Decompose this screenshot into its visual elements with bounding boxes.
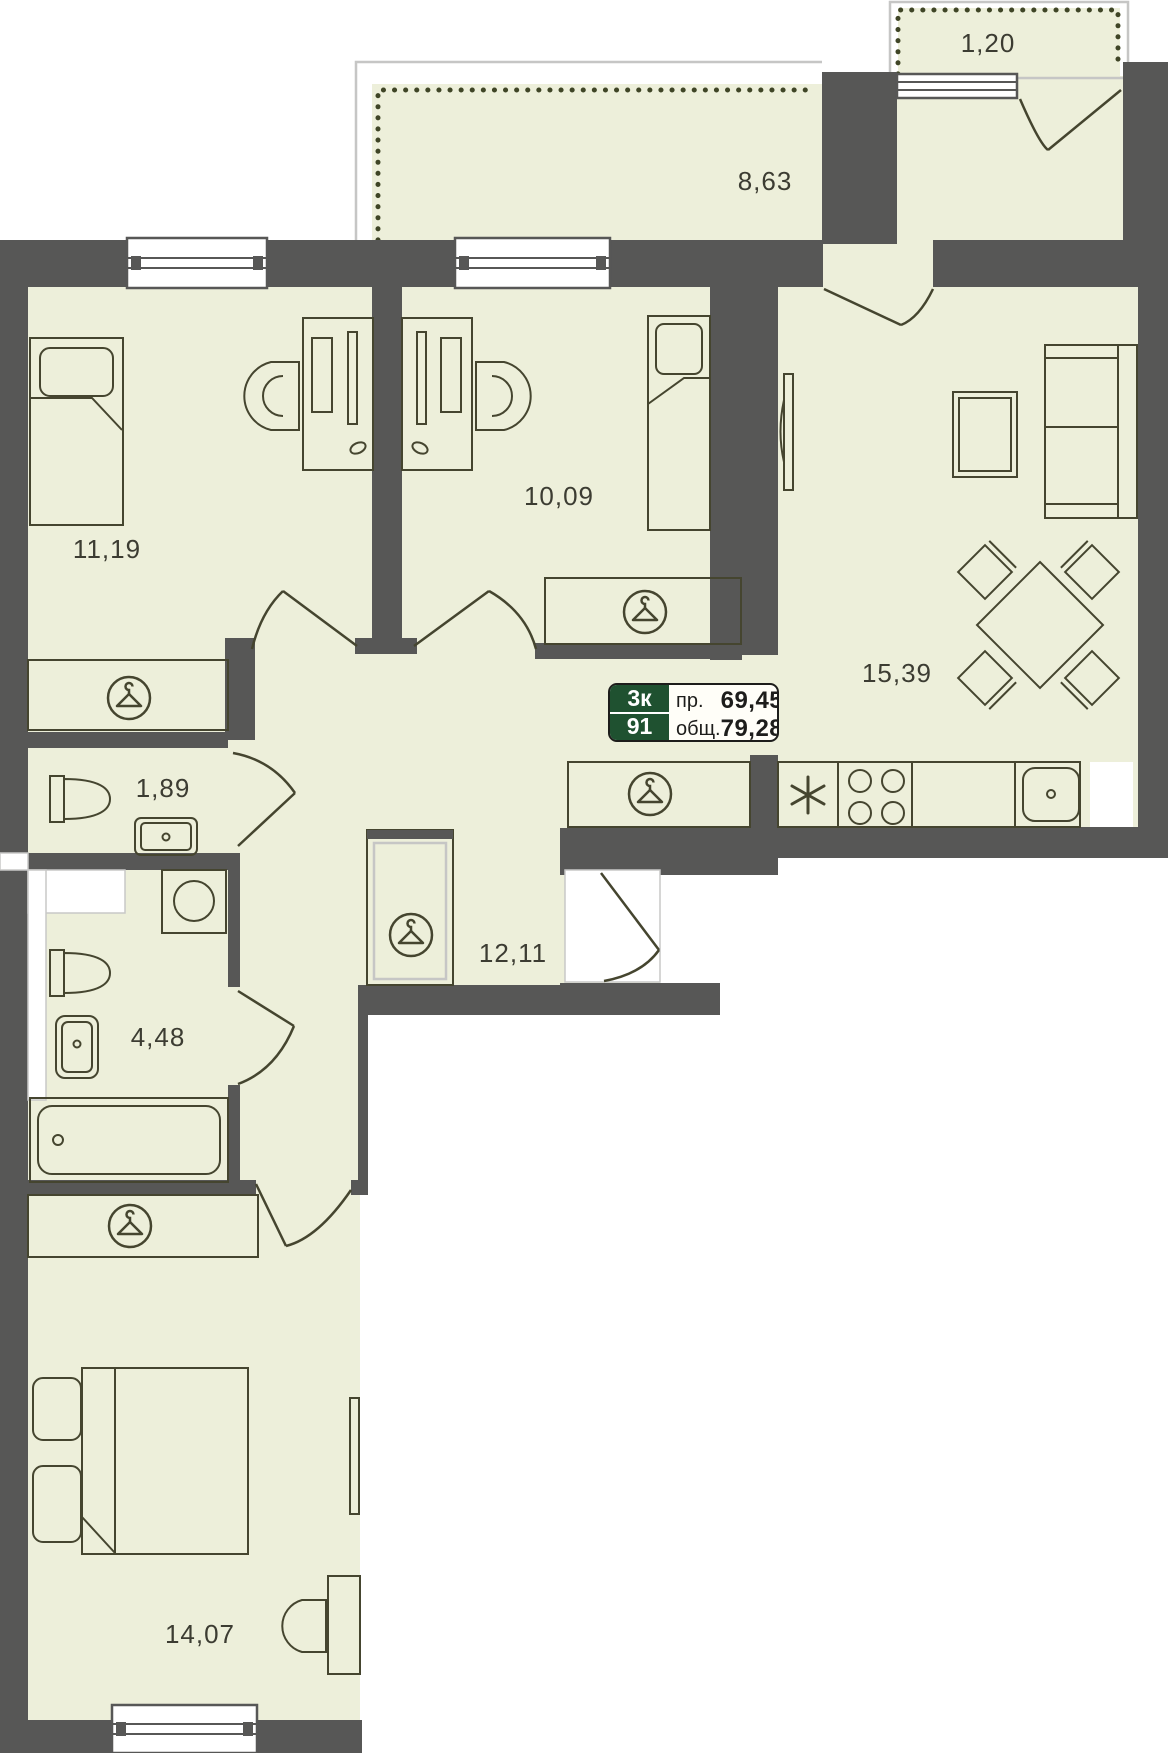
unit-badge-green: 3к 91	[610, 685, 669, 740]
living-area-row: пр. 69,45	[676, 687, 779, 715]
label-bedroom-1: 11,19	[73, 534, 141, 564]
shaft-notch-left	[0, 853, 28, 870]
window-bedroom2	[455, 238, 610, 288]
floor-plan-drawing: 1,20 8,63 11,19 10,09 15,39 1,89 4,48 12…	[0, 0, 1168, 1753]
fridge-niche	[1090, 762, 1133, 827]
window-bedroom3	[112, 1705, 257, 1753]
total-area-label: общ.	[676, 718, 721, 741]
wall-corridor-thin	[358, 985, 368, 1190]
wall-between-bedrooms-base	[355, 638, 417, 654]
wall-chunk-top	[822, 72, 897, 244]
unit-info-badge: 3к 91 пр. 69,45 общ. 79,28	[608, 683, 779, 742]
wall-left	[0, 240, 28, 1753]
window-bedroom1	[127, 238, 267, 288]
floor-nook	[883, 76, 1123, 246]
label-hallway: 12,11	[479, 938, 547, 968]
wall-toilet-bath	[28, 853, 228, 870]
label-balcony-large: 8,63	[738, 166, 793, 196]
label-bathroom: 4,48	[131, 1022, 186, 1052]
wall-bedroom1-south	[28, 732, 228, 748]
wall-top-2	[267, 240, 455, 287]
wall-right	[1138, 240, 1168, 858]
wall-entry-bottom	[560, 983, 720, 1015]
unit-rooms: 3к	[610, 685, 669, 714]
wall-right-nook	[1123, 62, 1168, 244]
label-living-kitchen: 15,39	[862, 658, 932, 688]
wall-bedroom3-jamb	[351, 1180, 368, 1195]
floor-balcony-large	[372, 84, 822, 244]
shaft-column	[28, 870, 46, 1100]
living-area-value: 69,45	[721, 687, 779, 715]
wall-top-4	[933, 240, 1138, 287]
wall-living-left	[742, 275, 778, 655]
label-toilet: 1,89	[136, 773, 191, 803]
unit-number: 91	[610, 714, 669, 741]
wall-bedroom1-corner	[225, 638, 255, 740]
wall-bath-corridor-1	[228, 853, 240, 987]
wall-between-bedrooms	[372, 285, 402, 643]
wall-living-bottom	[748, 827, 1168, 858]
label-balcony-small: 1,20	[961, 28, 1016, 58]
wall-entry-top	[560, 828, 778, 875]
label-bedroom-3: 14,07	[165, 1619, 235, 1649]
living-area-label: пр.	[676, 690, 704, 713]
window-balcony-small	[897, 74, 1017, 98]
unit-badge-areas: пр. 69,45 общ. 79,28	[669, 685, 779, 740]
floor-plan: 1,20 8,63 11,19 10,09 15,39 1,89 4,48 12…	[0, 0, 1168, 1753]
wall-kitchen-corner	[750, 755, 778, 832]
wall-bedroom2-south	[535, 643, 740, 659]
total-area-value: 79,28	[721, 715, 779, 742]
wall-bedroom2-living	[710, 275, 742, 660]
label-bedroom-2: 10,09	[524, 481, 594, 511]
wall-bath-corridor-2	[228, 1085, 240, 1185]
total-area-row: общ. 79,28	[676, 715, 779, 742]
